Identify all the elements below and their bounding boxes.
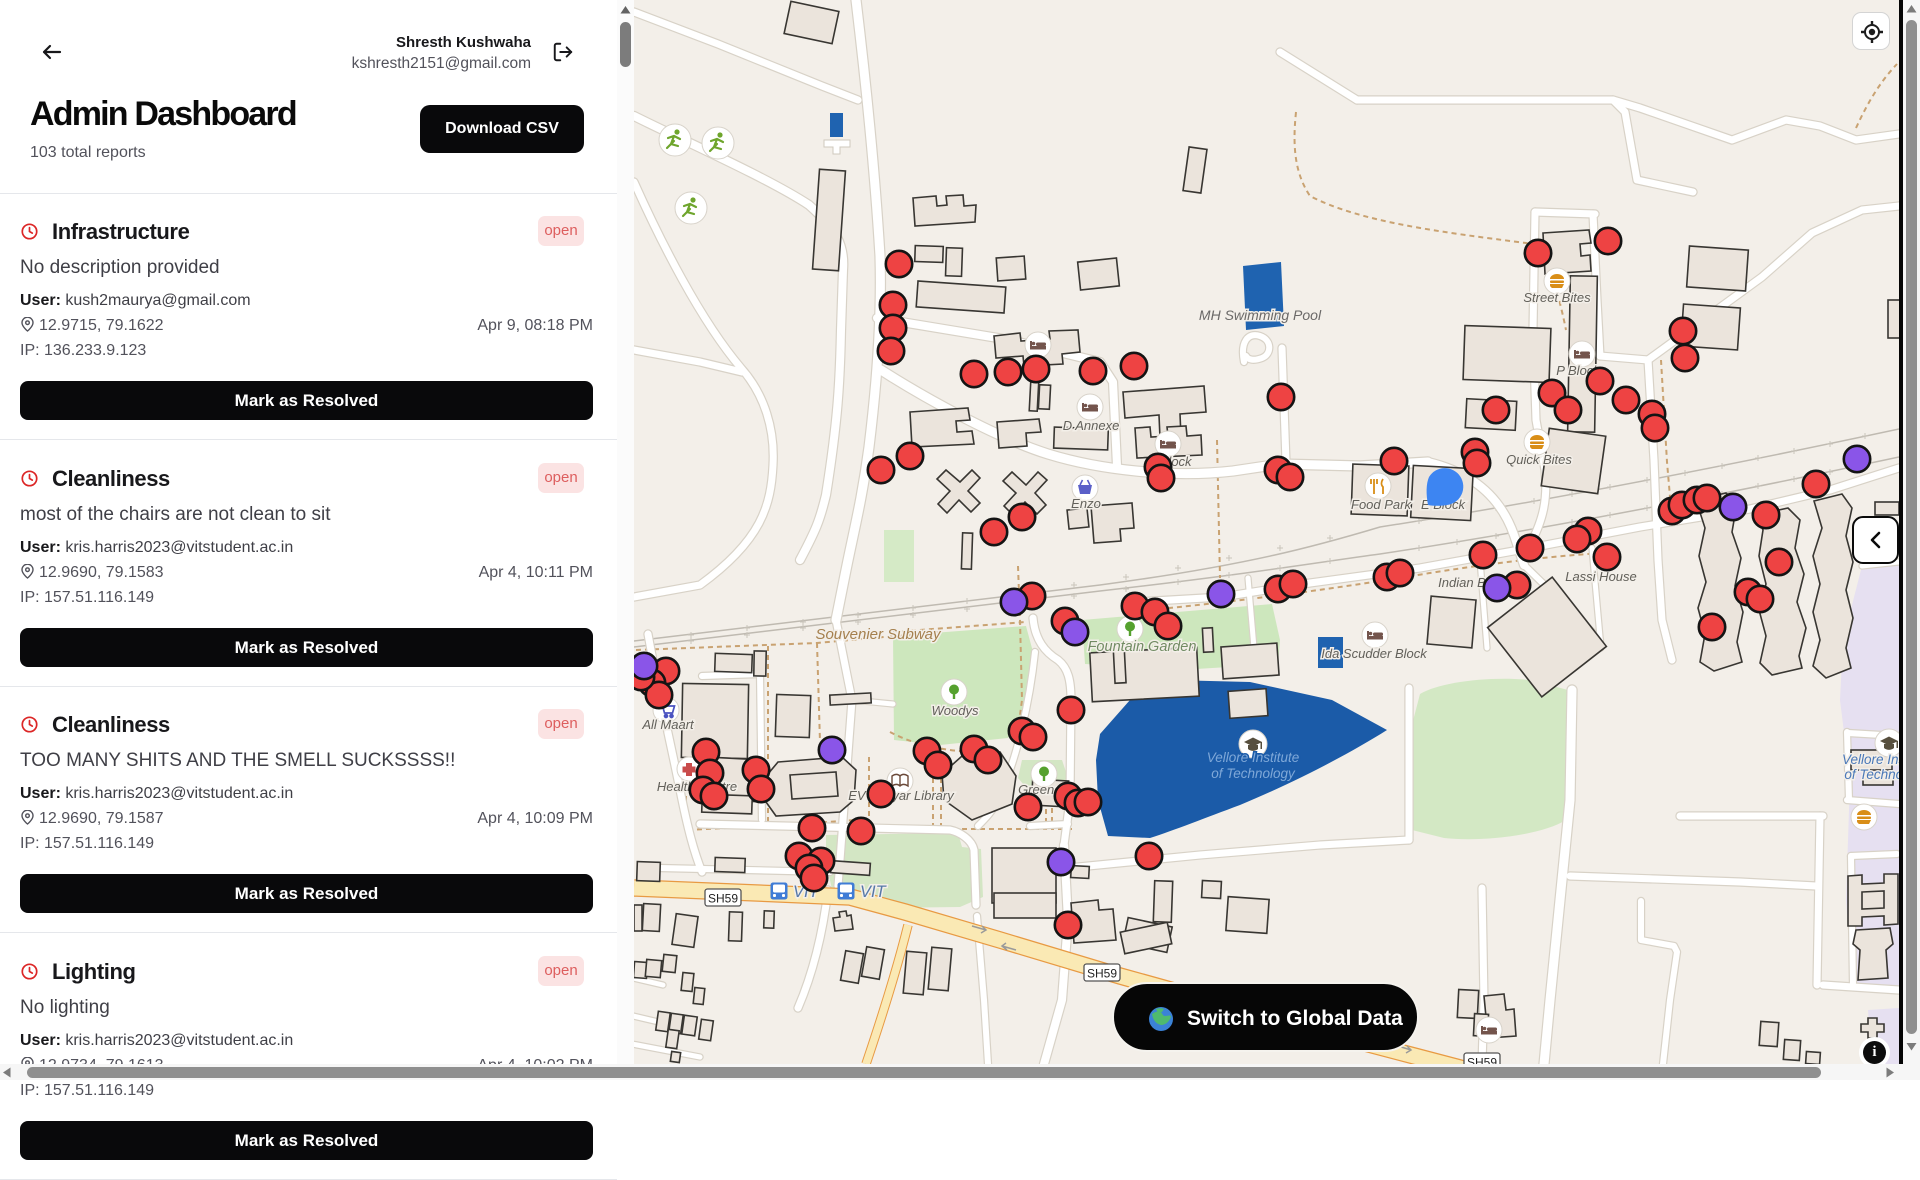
svg-text:Enzo: Enzo xyxy=(1071,496,1101,511)
svg-text:VIT: VIT xyxy=(860,883,888,901)
svg-text:of Technology: of Technology xyxy=(1211,766,1296,781)
svg-text:Ida Scudder Block: Ida Scudder Block xyxy=(1321,646,1428,661)
svg-text:SH59: SH59 xyxy=(1467,1056,1497,1065)
svg-text:Street Bites: Street Bites xyxy=(1523,290,1591,305)
svg-text:Vellore Institute: Vellore Institute xyxy=(1207,750,1300,765)
svg-text:Vellore Insti: Vellore Insti xyxy=(1842,752,1899,767)
svg-text:Indian B: Indian B xyxy=(1438,575,1486,590)
svg-text:Lassi House: Lassi House xyxy=(1565,569,1637,584)
svg-text:Fountain Garden: Fountain Garden xyxy=(1088,639,1197,655)
svg-text:All Maart: All Maart xyxy=(641,717,695,732)
svg-text:D Annexe: D Annexe xyxy=(1063,418,1120,433)
svg-text:Food Park: Food Park xyxy=(1351,497,1412,512)
svg-text:MH Swimming Pool: MH Swimming Pool xyxy=(1199,307,1322,323)
svg-text:Souvenier Subway: Souvenier Subway xyxy=(815,626,942,643)
svg-text:Woodys: Woodys xyxy=(932,703,979,718)
svg-text:SH59: SH59 xyxy=(708,892,738,906)
svg-text:EV Periyar Library: EV Periyar Library xyxy=(848,788,955,803)
svg-text:SH59: SH59 xyxy=(1087,967,1117,981)
svg-text:of Technolo: of Technolo xyxy=(1844,767,1899,782)
svg-text:Quick Bites: Quick Bites xyxy=(1506,452,1572,467)
